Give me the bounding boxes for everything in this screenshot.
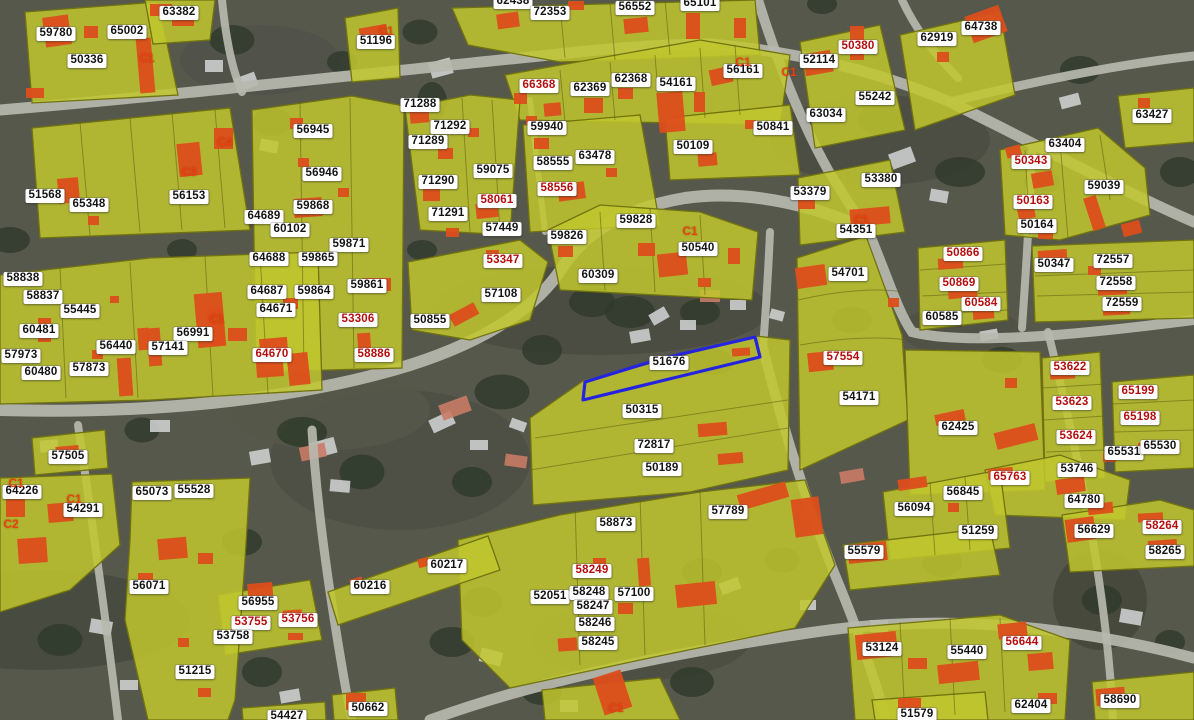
construction-marker-C1: C1 (735, 55, 750, 69)
construction-marker-C1: C1 (66, 492, 81, 506)
parcel-label-54171[interactable]: 54171 (840, 391, 879, 405)
parcel-label-54161[interactable]: 54161 (657, 77, 696, 91)
parcel-label-50380[interactable]: 50380 (839, 40, 878, 54)
parcel-label-60217[interactable]: 60217 (428, 559, 467, 573)
parcel-label-59826[interactable]: 59826 (548, 230, 587, 244)
parcel-label-53306[interactable]: 53306 (339, 313, 378, 327)
parcel-label-53624[interactable]: 53624 (1057, 430, 1096, 444)
parcel-label-72558[interactable]: 72558 (1097, 276, 1136, 290)
parcel-label-72559[interactable]: 72559 (1103, 297, 1142, 311)
parcel-label-59075[interactable]: 59075 (474, 164, 513, 178)
parcel-label-58248[interactable]: 58248 (570, 586, 609, 600)
parcel-label-56644[interactable]: 56644 (1003, 636, 1042, 650)
parcel-label-58838[interactable]: 58838 (4, 272, 43, 286)
parcel-label-71290[interactable]: 71290 (419, 175, 458, 189)
construction-marker-C3: C3 (181, 165, 196, 179)
parcel-label-57873[interactable]: 57873 (70, 362, 109, 376)
parcel-label-53379[interactable]: 53379 (791, 186, 830, 200)
parcel-label-71292[interactable]: 71292 (431, 120, 470, 134)
parcel-label-50164[interactable]: 50164 (1018, 219, 1057, 233)
parcel-label-58556[interactable]: 58556 (538, 182, 577, 196)
construction-marker-C1: C1 (139, 51, 154, 65)
construction-marker-C1: C1 (682, 224, 697, 238)
parcel-label-58265[interactable]: 58265 (1146, 545, 1185, 559)
parcel-label-59861[interactable]: 59861 (348, 279, 387, 293)
construction-marker-C1: C1 (853, 213, 868, 227)
parcel-label-59864[interactable]: 59864 (295, 285, 334, 299)
parcel-label-65073[interactable]: 65073 (133, 486, 172, 500)
parcel-label-62369[interactable]: 62369 (571, 82, 610, 96)
parcel-label-60309[interactable]: 60309 (579, 269, 618, 283)
parcel-label-62368[interactable]: 62368 (612, 73, 651, 87)
parcel-label-53380[interactable]: 53380 (862, 173, 901, 187)
parcel-label-60481[interactable]: 60481 (20, 324, 59, 338)
parcel-label-58873[interactable]: 58873 (597, 517, 636, 531)
parcel-label-55242[interactable]: 55242 (856, 91, 895, 105)
parcel-label-65763[interactable]: 65763 (991, 471, 1030, 485)
parcel-label-64738[interactable]: 64738 (962, 21, 1001, 35)
parcel-label-63034[interactable]: 63034 (807, 108, 846, 122)
parcel-label-64689[interactable]: 64689 (245, 210, 284, 224)
parcel-label-50347[interactable]: 50347 (1035, 258, 1074, 272)
parcel-label-56845[interactable]: 56845 (944, 486, 983, 500)
parcel-label-51259[interactable]: 51259 (959, 525, 998, 539)
parcel-label-63404[interactable]: 63404 (1046, 138, 1085, 152)
parcel-label-58061[interactable]: 58061 (478, 194, 517, 208)
parcel-label-59039[interactable]: 59039 (1085, 180, 1124, 194)
parcel-label-64687[interactable]: 64687 (248, 285, 287, 299)
parcel-label-51215[interactable]: 51215 (176, 665, 215, 679)
parcel-label-50163[interactable]: 50163 (1014, 195, 1053, 209)
parcel-label-59780[interactable]: 59780 (37, 27, 76, 41)
parcel-label-64780[interactable]: 64780 (1065, 494, 1104, 508)
parcel-label-50109[interactable]: 50109 (674, 140, 713, 154)
parcel-label-65199[interactable]: 65199 (1119, 385, 1158, 399)
parcel-label-58837[interactable]: 58837 (24, 290, 63, 304)
parcel-label-55445[interactable]: 55445 (61, 304, 100, 318)
parcel-label-57141[interactable]: 57141 (149, 341, 188, 355)
parcel-label-65530[interactable]: 65530 (1141, 440, 1180, 454)
parcel-label-57554[interactable]: 57554 (824, 351, 863, 365)
parcel-label-53623[interactable]: 53623 (1053, 396, 1092, 410)
parcel-label-52114[interactable]: 52114 (800, 54, 838, 68)
parcel-label-59868[interactable]: 59868 (294, 200, 333, 214)
parcel-label-59871[interactable]: 59871 (330, 238, 369, 252)
parcel-label-51579[interactable]: 51579 (898, 708, 937, 720)
parcel-label-55579[interactable]: 55579 (845, 545, 884, 559)
parcel-label-71291[interactable]: 71291 (429, 207, 468, 221)
parcel-label-65101[interactable]: 65101 (681, 0, 720, 11)
parcel-label-52051[interactable]: 52051 (531, 590, 570, 604)
parcel-label-65348[interactable]: 65348 (70, 198, 109, 212)
parcel-label-63427[interactable]: 63427 (1133, 109, 1172, 123)
parcel-label-56991[interactable]: 56991 (174, 327, 213, 341)
parcel-label-53124[interactable]: 53124 (863, 642, 902, 656)
parcel-label-50662[interactable]: 50662 (349, 702, 388, 716)
parcel-label-60480[interactable]: 60480 (22, 366, 61, 380)
parcel-label-64671[interactable]: 64671 (257, 303, 296, 317)
construction-marker-C1: C1 (378, 24, 393, 38)
parcel-label-63382[interactable]: 63382 (160, 6, 199, 20)
parcel-label-58247[interactable]: 58247 (574, 600, 613, 614)
parcel-label-60585[interactable]: 60585 (923, 311, 962, 325)
parcel-label-59865[interactable]: 59865 (299, 252, 338, 266)
parcel-label-50869[interactable]: 50869 (940, 277, 979, 291)
parcel-label-56094[interactable]: 56094 (895, 502, 934, 516)
parcel-label-64688[interactable]: 64688 (250, 252, 289, 266)
parcel-label-58886[interactable]: 58886 (355, 348, 394, 362)
parcel-label-56552[interactable]: 56552 (616, 1, 655, 15)
parcel-label-53758[interactable]: 53758 (214, 630, 253, 644)
parcel-label-72353[interactable]: 72353 (531, 6, 570, 20)
parcel-label-57789[interactable]: 57789 (709, 505, 748, 519)
parcel-label-57505[interactable]: 57505 (49, 450, 88, 464)
parcel-label-71288[interactable]: 71288 (401, 98, 440, 112)
parcel-label-56153[interactable]: 56153 (170, 190, 209, 204)
parcel-label-50866[interactable]: 50866 (944, 247, 983, 261)
parcel-label-71289[interactable]: 71289 (409, 135, 448, 149)
parcel-label-50189[interactable]: 50189 (643, 462, 682, 476)
parcel-label-72817[interactable]: 72817 (635, 439, 674, 453)
parcel-label-56629[interactable]: 56629 (1075, 524, 1114, 538)
construction-marker-C1: C1 (209, 312, 224, 326)
parcel-label-65002[interactable]: 65002 (108, 25, 147, 39)
parcel-label-53347[interactable]: 53347 (484, 254, 523, 268)
parcel-label-50540[interactable]: 50540 (679, 242, 718, 256)
parcel-label-57108[interactable]: 57108 (482, 288, 521, 302)
parcel-label-66368[interactable]: 66368 (520, 79, 559, 93)
parcel-label-59940[interactable]: 59940 (528, 121, 567, 135)
parcel-label-59828[interactable]: 59828 (617, 214, 656, 228)
parcel-label-65198[interactable]: 65198 (1121, 411, 1160, 425)
parcel-label-62404[interactable]: 62404 (1012, 699, 1051, 713)
parcel-label-60216[interactable]: 60216 (351, 580, 390, 594)
parcel-label-54701[interactable]: 54701 (829, 267, 868, 281)
parcel-label-53755[interactable]: 53755 (232, 616, 271, 630)
construction-marker-C1: C1 (608, 701, 623, 715)
parcel-label-layer: 5978065002503366338251196624387235356552… (0, 0, 1194, 720)
construction-marker-C1: C1 (8, 476, 23, 490)
parcel-label-58690[interactable]: 58690 (1101, 694, 1140, 708)
parcel-label-50343[interactable]: 50343 (1012, 155, 1051, 169)
parcel-label-53622[interactable]: 53622 (1051, 361, 1090, 375)
parcel-label-56071[interactable]: 56071 (130, 580, 169, 594)
parcel-label-57973[interactable]: 57973 (2, 349, 41, 363)
parcel-label-57449[interactable]: 57449 (483, 222, 522, 236)
construction-marker-C1: C1 (781, 65, 796, 79)
cadastral-map-viewport[interactable]: 5978065002503366338251196624387235356552… (0, 0, 1194, 720)
parcel-label-55528[interactable]: 55528 (175, 484, 214, 498)
parcel-label-60102[interactable]: 60102 (271, 223, 310, 237)
parcel-label-56946[interactable]: 56946 (303, 167, 342, 181)
parcel-label-63478[interactable]: 63478 (576, 150, 615, 164)
parcel-label-58264[interactable]: 58264 (1143, 520, 1182, 534)
parcel-label-62438[interactable]: 62438 (494, 0, 533, 9)
parcel-label-50336[interactable]: 50336 (68, 54, 107, 68)
parcel-label-58245[interactable]: 58245 (579, 636, 618, 650)
parcel-label-65531[interactable]: 65531 (1105, 446, 1144, 460)
parcel-label-57100[interactable]: 57100 (615, 587, 654, 601)
parcel-label-50315[interactable]: 50315 (623, 404, 662, 418)
parcel-label-62919[interactable]: 62919 (918, 32, 957, 46)
construction-marker-C2: C2 (3, 517, 18, 531)
parcel-label-50841[interactable]: 50841 (754, 121, 793, 135)
parcel-label-55440[interactable]: 55440 (948, 645, 987, 659)
parcel-label-58246[interactable]: 58246 (576, 617, 615, 631)
parcel-label-62425[interactable]: 62425 (939, 421, 978, 435)
construction-marker-C4: C4 (217, 135, 232, 149)
parcel-label-72557[interactable]: 72557 (1094, 254, 1133, 268)
parcel-label-60584[interactable]: 60584 (962, 297, 1001, 311)
parcel-label-56955[interactable]: 56955 (239, 596, 278, 610)
parcel-label-58249[interactable]: 58249 (573, 564, 612, 578)
parcel-label-50855[interactable]: 50855 (411, 314, 450, 328)
parcel-label-53756[interactable]: 53756 (279, 613, 318, 627)
parcel-label-51676[interactable]: 51676 (650, 356, 689, 370)
parcel-label-58555[interactable]: 58555 (534, 156, 573, 170)
parcel-label-56440[interactable]: 56440 (97, 340, 136, 354)
parcel-label-56945[interactable]: 56945 (294, 124, 333, 138)
parcel-label-53746[interactable]: 53746 (1058, 463, 1097, 477)
parcel-label-64670[interactable]: 64670 (253, 348, 292, 362)
parcel-label-54427[interactable]: 54427 (268, 710, 307, 720)
parcel-label-51568[interactable]: 51568 (26, 189, 65, 203)
